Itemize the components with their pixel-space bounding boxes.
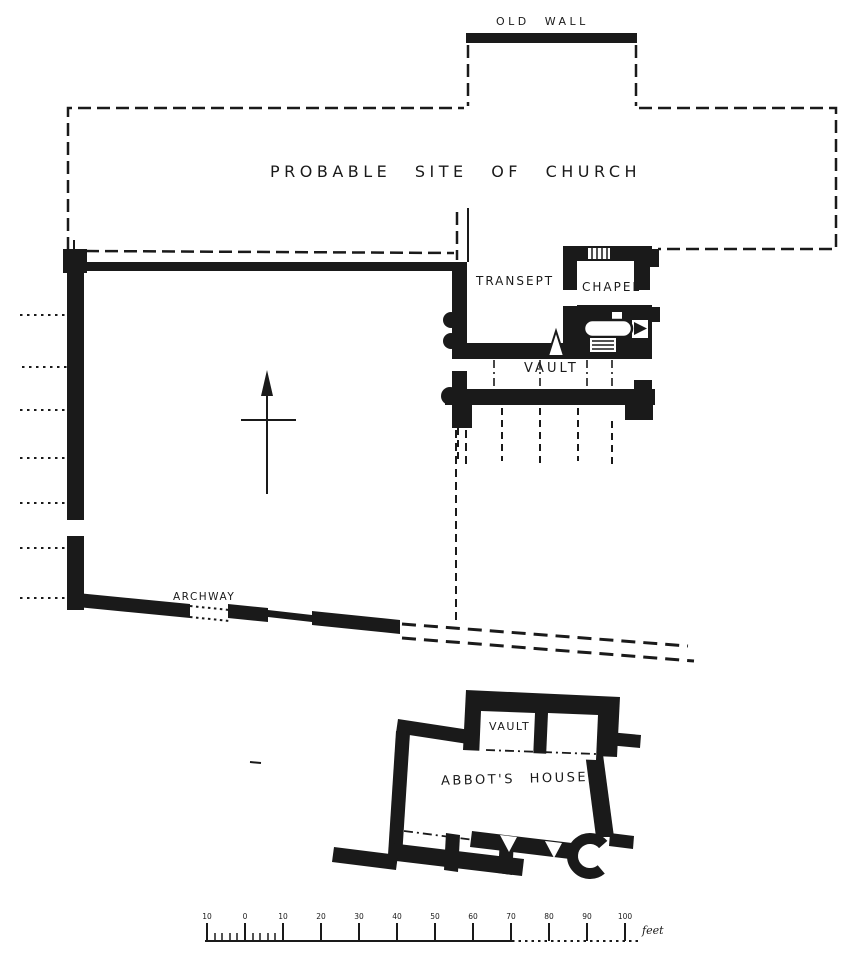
- vault-south-dashed-lines: [458, 408, 612, 467]
- abbots-house-dashed-lines: [404, 750, 596, 840]
- scale-tick-label: 80: [537, 912, 561, 921]
- label-transept: TRANSEPT: [476, 274, 554, 288]
- label-old-wall: OLD WALL: [496, 15, 589, 28]
- plan-drawing: [0, 0, 855, 975]
- label-archway: ARCHWAY: [173, 591, 235, 603]
- scale-tick-label: 10: [195, 912, 219, 921]
- north-arrow-icon: [241, 370, 296, 494]
- scale-unit-label: feet: [642, 924, 664, 937]
- label-abbots-house-vault: VAULT: [489, 720, 530, 733]
- site-plan-figure: OLD WALL PROBABLE SITE OF CHURCH TRANSEP…: [0, 0, 855, 975]
- scale-bar: [205, 923, 640, 941]
- scale-tick-label: 60: [461, 912, 485, 921]
- scale-tick-label: 0: [233, 912, 257, 921]
- scale-tick-label: 50: [423, 912, 447, 921]
- church-site-outline: [68, 45, 836, 260]
- label-church-site: PROBABLE SITE OF CHURCH: [270, 162, 641, 181]
- west-wall-dotted-lines: [20, 315, 67, 598]
- scale-tick-label: 100: [613, 912, 637, 921]
- scale-tick-label: 30: [347, 912, 371, 921]
- scale-tick-label: 20: [309, 912, 333, 921]
- scale-tick-label: 90: [575, 912, 599, 921]
- scale-tick-label: 70: [499, 912, 523, 921]
- scale-tick-label: 10: [271, 912, 295, 921]
- ink-speck: [250, 762, 261, 763]
- round-tower: [565, 831, 614, 880]
- archway-dotted-opening: [190, 606, 230, 621]
- south-wall-dashed-continuation: [402, 624, 694, 661]
- old-wall-bar: [466, 33, 637, 43]
- label-chapel: CHAPEL: [582, 280, 641, 294]
- label-vault: VAULT: [524, 361, 579, 376]
- scale-tick-label: 40: [385, 912, 409, 921]
